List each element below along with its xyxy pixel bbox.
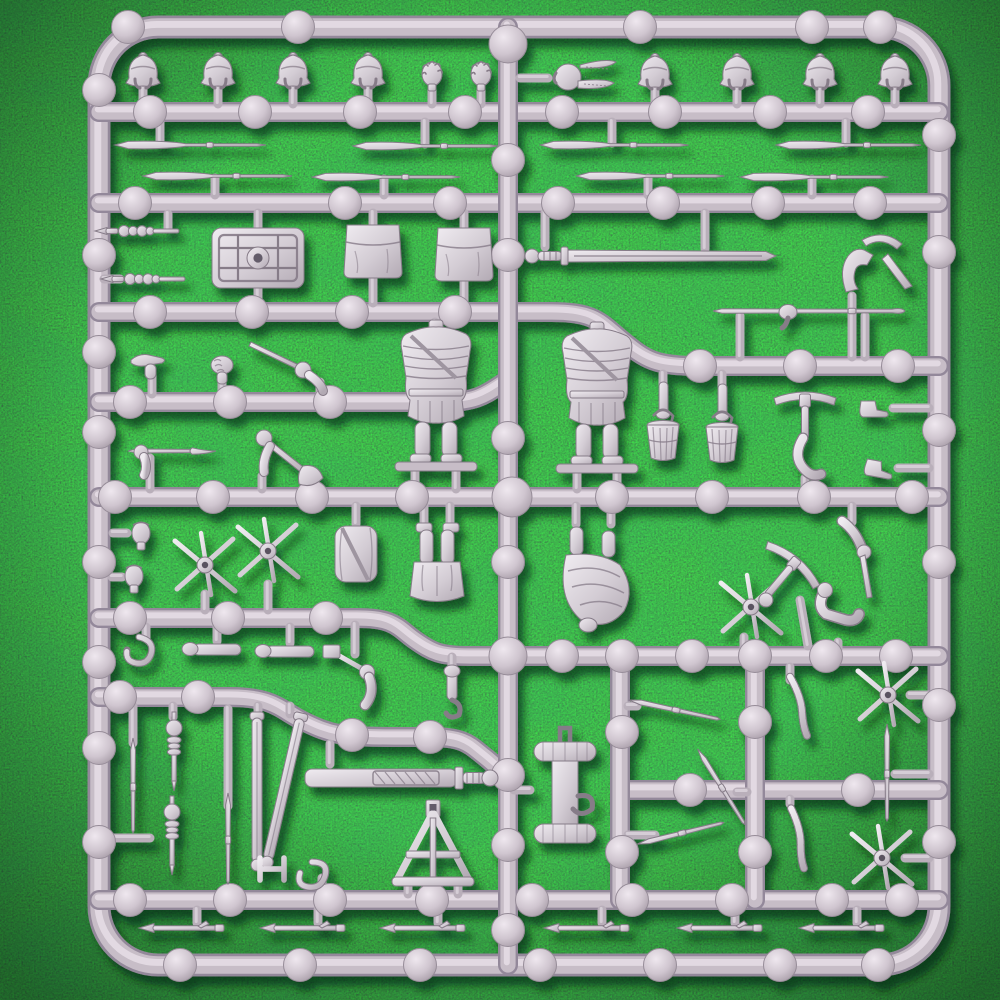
- injection-node: [716, 884, 749, 917]
- injection-node: [596, 481, 629, 514]
- injection-node: [396, 481, 429, 514]
- injection-node: [896, 481, 929, 514]
- sprue-photo: [0, 0, 1000, 1000]
- injection-node: [923, 826, 956, 859]
- injection-node: [842, 774, 875, 807]
- injection-node: [923, 236, 956, 269]
- injection-node: [696, 481, 729, 514]
- injection-node: [492, 477, 532, 517]
- injection-node: [83, 732, 116, 765]
- injection-node: [239, 96, 272, 129]
- injection-node: [546, 640, 579, 673]
- injection-node: [83, 826, 116, 859]
- injection-node: [83, 74, 116, 107]
- injection-node: [674, 774, 707, 807]
- injection-node: [83, 546, 116, 579]
- injection-node: [882, 350, 915, 383]
- injection-node: [112, 11, 145, 44]
- injection-node: [197, 481, 230, 514]
- injection-node: [492, 144, 525, 177]
- injection-node: [492, 546, 525, 579]
- injection-node: [684, 350, 717, 383]
- injection-node: [923, 414, 956, 447]
- injection-node: [606, 640, 639, 673]
- injection-node: [114, 386, 147, 419]
- injection-node: [134, 96, 167, 129]
- sprue-illustration: [0, 0, 1000, 1000]
- injection-node: [489, 637, 527, 675]
- injection-node: [434, 187, 467, 220]
- forearm-part: [182, 643, 241, 656]
- injection-node: [182, 681, 215, 714]
- injection-node: [810, 640, 843, 673]
- injection-node: [83, 416, 116, 449]
- injection-node: [414, 721, 447, 754]
- injection-node: [676, 640, 709, 673]
- javelin-part: [884, 724, 889, 821]
- injection-node: [416, 884, 449, 917]
- injection-node: [492, 829, 525, 862]
- injection-node: [764, 949, 797, 982]
- pouch-part: [344, 225, 402, 278]
- injection-node: [546, 96, 579, 129]
- injection-node: [606, 716, 639, 749]
- injection-node: [83, 239, 116, 272]
- injection-node: [336, 719, 369, 752]
- injection-node: [119, 187, 152, 220]
- javelin-part: [130, 738, 135, 833]
- injection-node: [214, 386, 247, 419]
- injection-node: [739, 640, 772, 673]
- injection-node: [886, 884, 919, 917]
- injection-node: [83, 336, 116, 369]
- injection-node: [923, 689, 956, 722]
- injection-node: [284, 949, 317, 982]
- injection-node: [449, 96, 482, 129]
- injection-node: [798, 481, 831, 514]
- injection-node: [739, 706, 772, 739]
- injection-node: [310, 602, 343, 635]
- injection-node: [752, 187, 785, 220]
- injection-node: [492, 914, 525, 947]
- injection-node: [329, 187, 362, 220]
- injection-node: [864, 11, 897, 44]
- injection-node: [739, 836, 772, 869]
- injection-node: [923, 546, 956, 579]
- injection-node: [114, 602, 147, 635]
- injection-node: [344, 96, 377, 129]
- injection-node: [796, 11, 829, 44]
- injection-node: [616, 884, 649, 917]
- injection-node: [104, 681, 137, 714]
- injection-node: [606, 836, 639, 869]
- injection-node: [852, 96, 885, 129]
- injection-node: [404, 949, 437, 982]
- injection-node: [99, 481, 132, 514]
- injection-node: [524, 949, 557, 982]
- injection-node: [164, 949, 197, 982]
- javelin-part: [225, 793, 230, 884]
- injection-node: [134, 296, 167, 329]
- injection-node: [296, 481, 329, 514]
- injection-node: [114, 884, 147, 917]
- injection-node: [644, 949, 677, 982]
- injection-node: [542, 187, 575, 220]
- injection-node: [236, 296, 269, 329]
- injection-node: [212, 602, 245, 635]
- injection-node: [923, 119, 956, 152]
- injection-node: [83, 646, 116, 679]
- packroll-part: [335, 526, 377, 582]
- injection-node: [624, 11, 657, 44]
- injection-node: [492, 239, 525, 272]
- forearm-part: [255, 645, 314, 658]
- injection-node: [336, 296, 369, 329]
- injection-node: [214, 884, 247, 917]
- injection-node: [489, 25, 527, 63]
- scabbard-part: [250, 712, 264, 871]
- scutum-part: [212, 228, 304, 288]
- injection-node: [649, 96, 682, 129]
- injection-node: [862, 949, 895, 982]
- pouch-part: [435, 228, 493, 281]
- injection-node: [754, 96, 787, 129]
- injection-node: [492, 422, 525, 455]
- injection-node: [282, 11, 315, 44]
- injection-node: [647, 187, 680, 220]
- injection-node: [516, 884, 549, 917]
- injection-node: [816, 884, 849, 917]
- injection-node: [854, 187, 887, 220]
- injection-node: [784, 350, 817, 383]
